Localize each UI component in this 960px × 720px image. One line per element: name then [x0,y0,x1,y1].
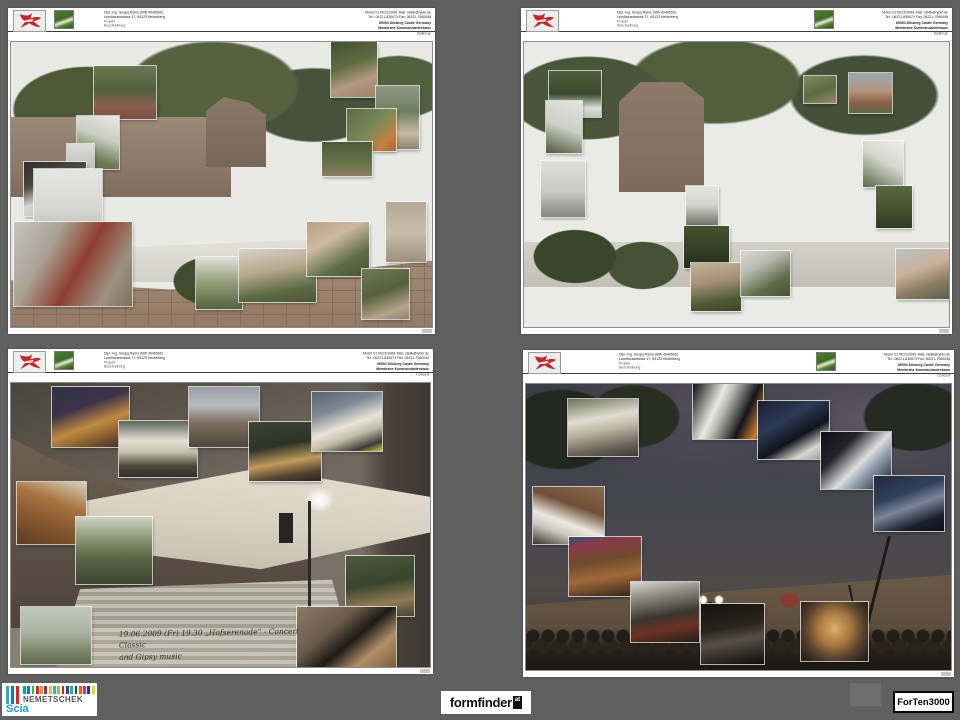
photo-tent-people-night [249,422,321,481]
sheet-build-up-2: Dipl.-Ing. Sergej Rybin (MW 4046500) Lan… [521,8,952,334]
photo-street-houses [896,249,950,299]
photo-night-membrane-edge [693,384,763,439]
collage-concert-dusk: 19.06.2009 (Fr) 19.30 „Hofserenade“ - Co… [10,382,431,668]
photo-canopy-dusk-sign [312,392,382,451]
nemetschek-wordmark: NEMETSCHEK [23,695,83,704]
owner-address-block: Dipl.-Ing. Sergej Rybin (MW 4046500) Lan… [104,11,243,29]
formfinder-at-badge: at [513,696,522,709]
formfinder-wordmark: formfinder [450,695,512,710]
photo-night-building-lights [52,387,129,447]
formfinder-logo: formfinderat [441,691,531,714]
membrane-star-logo-icon [528,352,561,374]
photo-arch-warm-people [801,602,868,661]
photo-hill-town-haze [21,607,91,664]
nemetschek-scia-logo: NEMETSCHEK Scia [2,683,97,716]
forten3000-logo: ForTen3000 [893,691,954,713]
photo-singer-on-steps [297,607,396,668]
owner-address-block: Dipl.-Ing. Sergej Rybin (MW 4046500) Lan… [619,353,758,371]
contact-project-block: Mobil: 0176/2319981 Mail: statik@rybin.d… [257,11,431,31]
photo-greens-at-wall [322,142,372,176]
membrane-star-logo-icon [526,10,559,32]
photo-topiary-house [331,42,377,97]
photo-hedge [876,186,912,228]
sheet-title: Build up [935,32,948,36]
photo-dark-passage [701,604,764,664]
contact-project-block: Mobil: 0176/2319981 Mail: statik@rybin.d… [255,352,429,372]
photo-audience-under-canopy [631,582,699,642]
gray-placeholder-chip [850,683,881,706]
photo-dark-bushes [684,226,729,268]
model-photo-thumbnail [54,10,74,29]
photo-night-tent-blue-sky [758,401,829,459]
nemetschek-tall-bars [6,686,19,704]
sheet-concert-2: Dipl.-Ing. Sergej Rybin (MW 4046500) Lan… [523,350,954,677]
speaker-box [279,513,293,543]
contact-project-block: Mobil: 0176/2319981 Mail: statik@rybin.d… [774,11,948,31]
owner-address-block: Dipl.-Ing. Sergej Rybin (MW 4046500) Lan… [617,11,756,29]
collage-build-up-day-1 [10,41,433,328]
sheet-title: Concert [937,374,950,378]
membrane-star-logo-icon [13,10,46,32]
sheet-concert-1: Dipl.-Ing. Sergej Rybin (MW 4046500) Lan… [8,349,433,674]
photo-garden-van [741,251,790,296]
photo-membrane-detail [863,141,903,187]
photo-audience-under-tent [76,517,152,584]
photo-tarp-in-garden [196,257,242,309]
owner-address-block: Dipl.-Ing. Sergej Rybin (MW 4046500) Lan… [104,352,243,370]
sheet-build-up-1: Dipl.-Ing. Sergej Rybin (MW 4046500) Lan… [8,8,435,334]
sheet-number [420,669,430,673]
sheet-title: Concert [416,373,429,377]
sheet-header: Dipl.-Ing. Sergej Rybin (MW 4046500) Lan… [8,8,435,32]
forten3000-wordmark: ForTen3000 [897,697,950,708]
bushes [524,207,694,297]
photo-two-men-resting [14,222,132,306]
photo-house-canopy-ladder [239,249,316,302]
event-caption: 19.06.2009 (Fr) 19.30 „Hofserenade“ - Co… [119,625,310,662]
photo-dusk-tent-guests [568,399,638,456]
photo-tarp-under-trees [546,101,582,153]
photo-man-at-rocks [362,269,409,319]
sheet-title: Build up [418,32,431,36]
sheet-number [941,672,951,676]
photo-stepladder [386,202,426,262]
sheet-header: Dipl.-Ing. Sergej Rybin (MW 4046500) Lan… [521,8,952,32]
photo-wall-canopy-diagonal [533,487,604,544]
sheet-header: Dipl.-Ing. Sergej Rybin (MW 4046500) Lan… [8,349,433,373]
photo-castle-night-blue [874,476,944,531]
membrane-star-logo-icon [13,351,46,373]
photo-house-hedge [691,263,741,311]
photo-truck-left [541,161,585,217]
collage-concert-night [525,383,952,671]
photo-town-roofs [849,73,892,113]
collage-build-up-day-2 [523,41,950,328]
scia-wordmark: Scia [6,703,29,715]
photo-balcony-worker [94,66,156,119]
photo-aerial-view [804,76,836,103]
nemetschek-color-bars [23,686,95,694]
sheet-header: Dipl.-Ing. Sergej Rybin (MW 4046500) Lan… [523,350,954,374]
photo-fachwerk-worker [307,222,369,276]
photo-white-tent-crowd [119,421,197,477]
model-photo-thumbnail [54,351,74,370]
sheet-number [422,329,432,333]
sheet-number [939,329,949,333]
contact-project-block: Mobil: 0176/2319981 Mail: statik@rybin.d… [776,353,950,373]
presentation-canvas: Dipl.-Ing. Sergej Rybin (MW 4046500) Lan… [0,0,960,720]
